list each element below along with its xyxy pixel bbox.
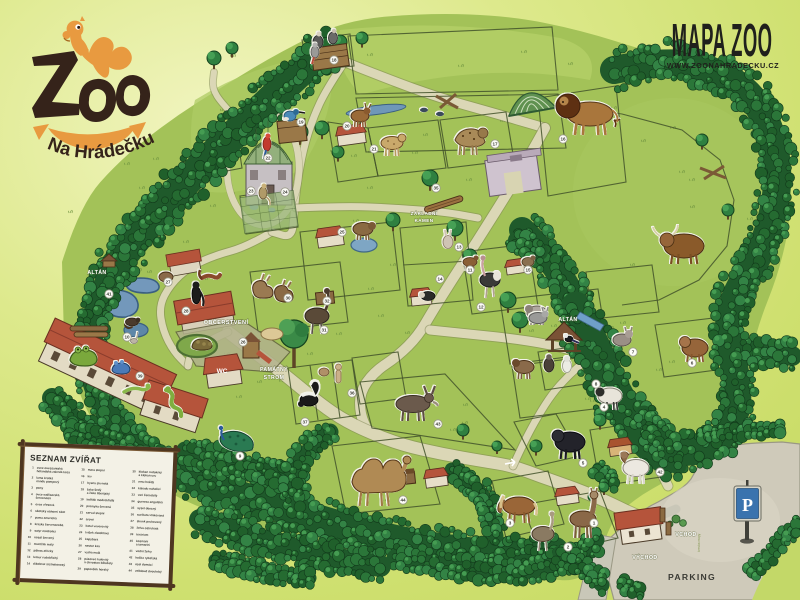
svg-text:41: 41	[129, 549, 133, 553]
svg-text:MAPA ZOO: MAPA ZOO	[672, 15, 773, 66]
svg-text:10: 10	[124, 335, 130, 340]
svg-text:43: 43	[129, 562, 133, 566]
svg-text:STROM: STROM	[264, 375, 285, 381]
svg-text:26: 26	[78, 543, 82, 547]
svg-text:VCHOD: VCHOD	[675, 532, 696, 538]
svg-text:18: 18	[331, 58, 337, 63]
svg-text:terárium: terárium	[136, 532, 148, 536]
svg-text:30: 30	[285, 296, 291, 301]
svg-text:17: 17	[492, 142, 498, 147]
svg-text:puma americká: puma americká	[35, 515, 57, 520]
svg-text:satyr modrolící: satyr modrolící	[34, 529, 56, 534]
svg-text:22: 22	[79, 517, 83, 521]
svg-text:5: 5	[582, 461, 585, 466]
svg-text:44: 44	[128, 568, 132, 572]
svg-text:14: 14	[437, 277, 443, 282]
svg-text:želva ostruhatá: želva ostruhatá	[136, 526, 158, 531]
svg-text:38: 38	[130, 526, 134, 530]
svg-text:emu hnědý: emu hnědý	[138, 480, 154, 485]
svg-text:PAMÁTNÝ: PAMÁTNÝ	[260, 366, 288, 373]
svg-text:13: 13	[27, 555, 31, 559]
svg-text:9: 9	[239, 454, 242, 459]
svg-text:a tamaríni: a tamaríni	[136, 542, 150, 547]
svg-text:11: 11	[468, 268, 473, 273]
svg-text:ZÁKLADNÍ: ZÁKLADNÍ	[411, 209, 438, 216]
svg-text:muntžak malý: muntžak malý	[34, 542, 54, 547]
svg-text:25: 25	[339, 230, 345, 235]
svg-text:18: 18	[81, 487, 85, 491]
svg-text:12: 12	[27, 548, 31, 552]
svg-text:ALTÁN: ALTÁN	[558, 316, 577, 323]
svg-text:KÁMEN: KÁMEN	[415, 217, 434, 223]
svg-text:vodní želvy: vodní želvy	[136, 549, 153, 554]
svg-text:20: 20	[80, 504, 84, 508]
svg-text:11: 11	[28, 542, 32, 546]
svg-text:WWW.ZOONAHRADECKU.CZ: WWW.ZOONAHRADECKU.CZ	[667, 61, 779, 70]
svg-text:23: 23	[79, 524, 83, 528]
svg-text:nosál červený: nosál červený	[34, 535, 54, 540]
svg-text:42: 42	[129, 555, 133, 559]
svg-text:17: 17	[81, 481, 85, 485]
svg-text:mara stepní: mara stepní	[88, 468, 105, 473]
svg-text:kresba mapy: kresba mapy	[697, 533, 701, 552]
svg-text:8: 8	[595, 382, 598, 387]
svg-text:40: 40	[130, 539, 134, 543]
svg-text:kapybara: kapybara	[85, 537, 99, 542]
svg-text:37: 37	[130, 519, 134, 523]
svg-text:22: 22	[265, 156, 271, 161]
svg-text:36: 36	[349, 391, 355, 396]
svg-text:P: P	[742, 495, 753, 515]
svg-text:43: 43	[435, 422, 441, 427]
svg-text:32: 32	[324, 299, 330, 304]
svg-text:24: 24	[282, 190, 288, 195]
svg-text:20: 20	[344, 124, 350, 129]
svg-text:32: 32	[132, 486, 136, 490]
svg-text:21: 21	[80, 510, 84, 514]
svg-text:vari černobílý: vari černobílý	[138, 493, 158, 498]
svg-text:39: 39	[137, 374, 143, 379]
svg-text:2: 2	[567, 545, 570, 550]
svg-text:35: 35	[433, 186, 439, 191]
svg-text:15: 15	[81, 467, 85, 471]
svg-text:29: 29	[78, 567, 82, 571]
svg-text:35: 35	[131, 506, 135, 510]
svg-text:kakadu naholící: kakadu naholící	[138, 486, 161, 491]
svg-text:39: 39	[130, 532, 134, 536]
svg-text:OBČERSTVENÍ: OBČERSTVENÍ	[204, 318, 249, 326]
svg-text:1: 1	[593, 521, 596, 526]
svg-text:lev: lev	[87, 474, 92, 478]
svg-text:19: 19	[298, 120, 304, 125]
svg-text:ovce vřesová: ovce vřesová	[35, 502, 54, 507]
svg-text:PARKING: PARKING	[668, 572, 716, 582]
svg-text:15: 15	[525, 268, 531, 273]
svg-text:nestor kea: nestor kea	[85, 544, 100, 549]
svg-text:27: 27	[78, 550, 82, 554]
svg-text:12: 12	[478, 305, 484, 310]
svg-text:23: 23	[248, 189, 254, 194]
svg-text:44: 44	[400, 498, 406, 503]
svg-text:41: 41	[106, 292, 112, 297]
svg-text:42: 42	[657, 470, 663, 475]
svg-text:serval stepní: serval stepní	[86, 511, 105, 516]
svg-text:31: 31	[321, 328, 327, 333]
svg-text:26: 26	[240, 340, 246, 345]
svg-text:ALTÁN: ALTÁN	[87, 269, 106, 276]
svg-text:28: 28	[78, 557, 82, 561]
svg-text:28: 28	[183, 309, 189, 314]
svg-text:3: 3	[509, 521, 512, 526]
svg-text:16: 16	[81, 474, 85, 478]
svg-text:13: 13	[456, 245, 462, 250]
svg-text:14: 14	[27, 561, 31, 565]
svg-text:33: 33	[131, 493, 135, 497]
svg-text:30: 30	[132, 469, 136, 473]
svg-text:WC: WC	[217, 368, 228, 375]
svg-text:19: 19	[80, 497, 84, 501]
svg-text:21: 21	[371, 147, 377, 152]
svg-text:pštros africký: pštros africký	[34, 548, 54, 553]
svg-text:10: 10	[28, 535, 32, 539]
svg-text:černonosá: černonosá	[36, 496, 52, 501]
svg-text:vydra malá: vydra malá	[84, 550, 100, 555]
svg-text:16: 16	[560, 137, 566, 142]
svg-text:25: 25	[79, 537, 83, 541]
svg-text:31: 31	[132, 479, 136, 483]
svg-text:24: 24	[79, 530, 83, 534]
svg-text:sysel obecný: sysel obecný	[137, 506, 156, 511]
svg-text:37: 37	[302, 420, 308, 425]
svg-text:27: 27	[165, 280, 171, 285]
svg-text:VÝCHOD: VÝCHOD	[632, 554, 657, 561]
svg-text:pony: pony	[36, 486, 44, 490]
svg-text:4: 4	[603, 405, 606, 410]
svg-text:36: 36	[131, 512, 135, 516]
svg-text:7: 7	[632, 350, 635, 355]
svg-text:6: 6	[691, 361, 694, 366]
svg-text:arové: arové	[86, 517, 94, 521]
svg-text:34: 34	[131, 499, 135, 503]
svg-text:a klokan uru: a klokan uru	[138, 473, 156, 478]
svg-text:osel domácí: osel domácí	[135, 562, 153, 567]
svg-text:kočka rybářská: kočka rybářská	[135, 556, 157, 561]
svg-text:hyena skvrnitá: hyena skvrnitá	[87, 481, 108, 486]
